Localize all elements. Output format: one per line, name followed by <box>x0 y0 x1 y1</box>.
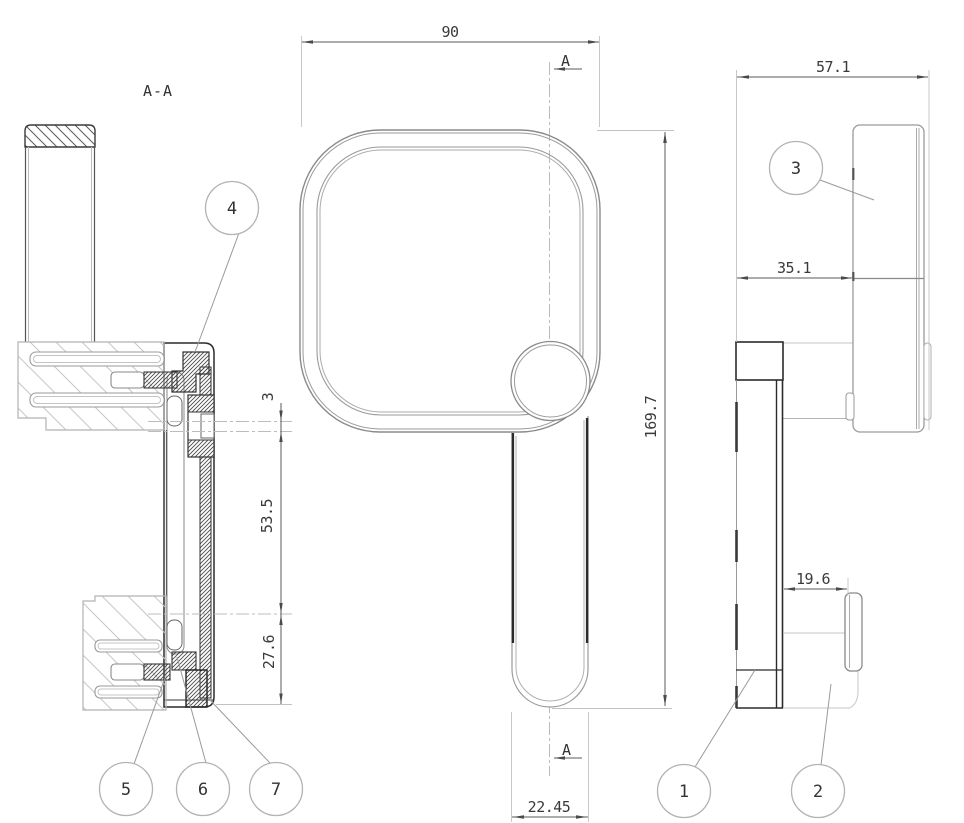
side-head <box>846 125 931 432</box>
gasket-mark <box>735 530 738 562</box>
side-plate <box>735 342 783 708</box>
dim-stack: 3 53.5 27.6 <box>216 393 292 705</box>
head-side-bump <box>924 343 931 420</box>
side-bottom-body <box>783 593 862 708</box>
balloon-3-label: 3 <box>791 159 801 179</box>
balloon-2-label: 2 <box>813 782 823 802</box>
section-grip <box>25 125 95 342</box>
gasket-mark <box>735 604 738 650</box>
gasket-mark <box>735 686 738 708</box>
balloon-callouts: 1 2 3 4 5 6 7 <box>100 142 875 818</box>
section-view: A-A <box>18 82 292 710</box>
gasket-mark <box>735 402 738 452</box>
fixing-screw <box>95 686 162 698</box>
section-cut-marker-top: A <box>554 52 582 71</box>
dim-axis-to-knob: 53.5 <box>258 499 276 533</box>
section-cut-marker-bottom: A <box>554 741 582 760</box>
side-view: 57.1 35.1 19.6 <box>735 58 931 708</box>
dim-knob-to-bottom: 27.6 <box>260 634 278 669</box>
section-door-lower <box>83 596 170 710</box>
svg-text:35.1: 35.1 <box>777 259 812 277</box>
svg-text:57.1: 57.1 <box>816 58 851 76</box>
fixing-screw <box>95 640 162 652</box>
svg-text:90: 90 <box>441 23 459 41</box>
head-clip <box>846 393 854 420</box>
balloon-5-label: 5 <box>121 780 131 800</box>
cut-letter-bottom: A <box>562 741 572 759</box>
cut-letter-top: A <box>561 52 571 70</box>
section-door-upper <box>18 342 177 430</box>
dim-axis-offset: 3 <box>259 393 277 402</box>
section-view-label: A-A <box>143 82 173 100</box>
spindle-section <box>144 372 177 388</box>
balloon-7-label: 7 <box>271 780 281 800</box>
dim-front-width: 90 <box>302 23 600 127</box>
fixing-screw <box>30 352 164 366</box>
turn-nut-section <box>172 652 196 670</box>
technical-drawing: A-A <box>0 0 964 823</box>
fixing-screw <box>30 393 164 407</box>
section-lock-body <box>164 343 214 707</box>
dim-knob-depth: 19.6 <box>784 570 848 595</box>
front-view: A A 90 169.7 <box>300 23 674 822</box>
balloon-1-label: 1 <box>679 782 689 802</box>
dim-head-depth: 35.1 <box>737 259 852 280</box>
balloon-6-label: 6 <box>198 780 208 800</box>
balloon-4-label: 4 <box>227 199 237 219</box>
svg-text:169.7: 169.7 <box>642 396 660 439</box>
spindle-section <box>144 664 170 680</box>
cylinder-front <box>511 342 590 421</box>
svg-text:22.45: 22.45 <box>528 798 571 816</box>
svg-text:19.6: 19.6 <box>796 570 831 588</box>
thumb-turn-knob <box>845 593 862 671</box>
